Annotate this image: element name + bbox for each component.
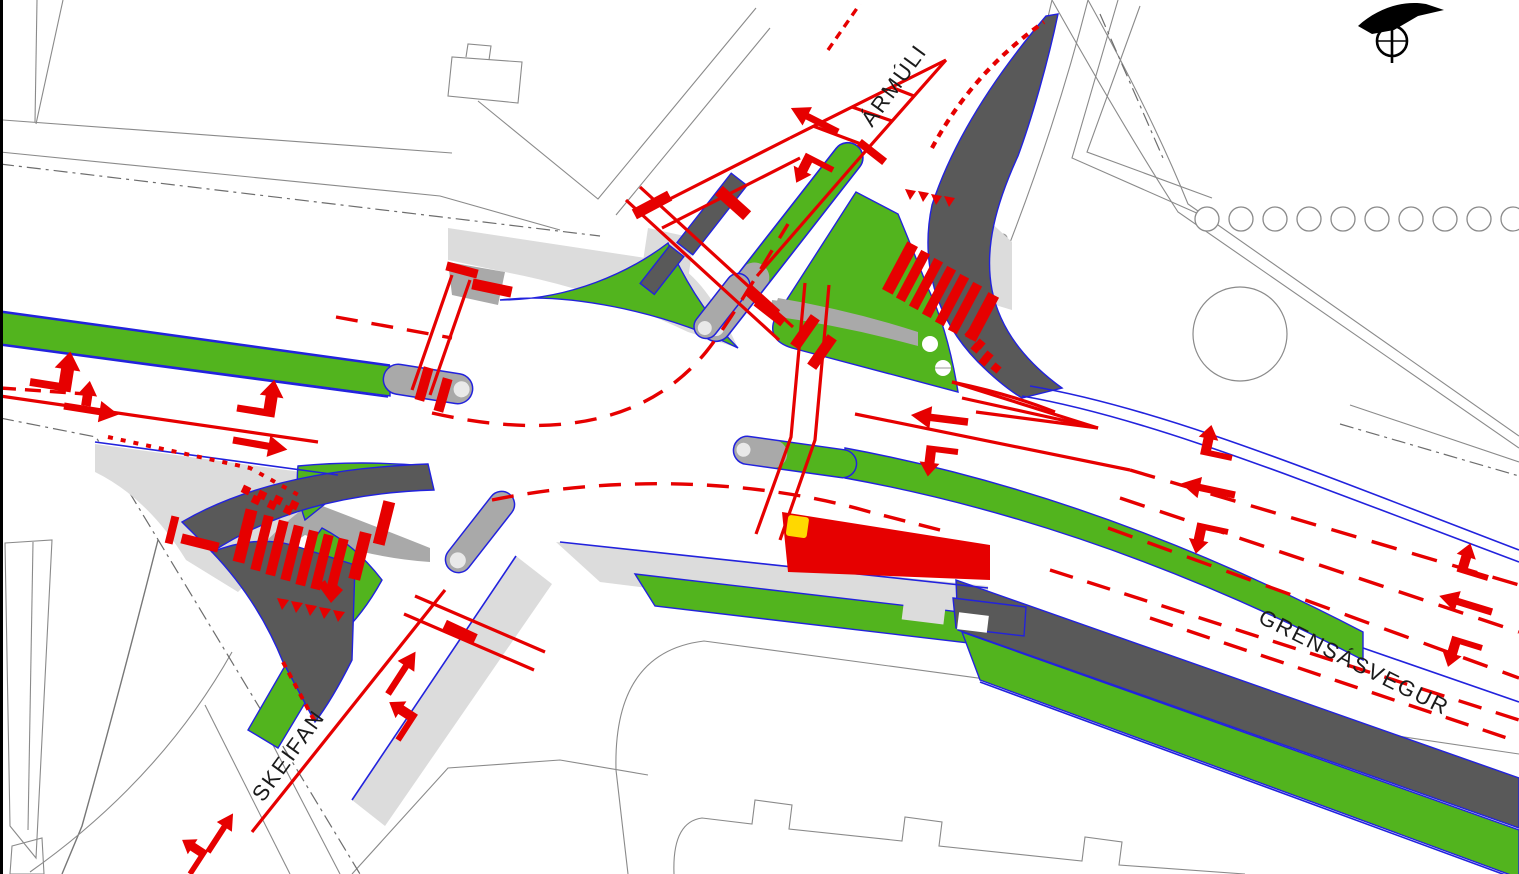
drawing-frame-border [0,0,3,874]
north-arrow-icon [1358,3,1444,63]
tree-row [1195,207,1519,231]
shelter-pad [902,596,947,625]
cycle-tracks [182,14,1519,828]
median-islands [381,137,869,578]
large-tree-circle [1193,287,1287,381]
bus-shelter-marker [786,515,810,539]
site-plan-canvas: ÁRMÚLI GRENSÁSVEGUR SKEIFAN [0,0,1519,874]
site-plan: ÁRMÚLI GRENSÁSVEGUR SKEIFAN [0,0,1519,874]
skeifan-median-island [440,486,520,578]
bus-stop-marking [782,512,990,580]
east-median-nose [732,435,859,480]
shelter-gap [957,612,989,633]
